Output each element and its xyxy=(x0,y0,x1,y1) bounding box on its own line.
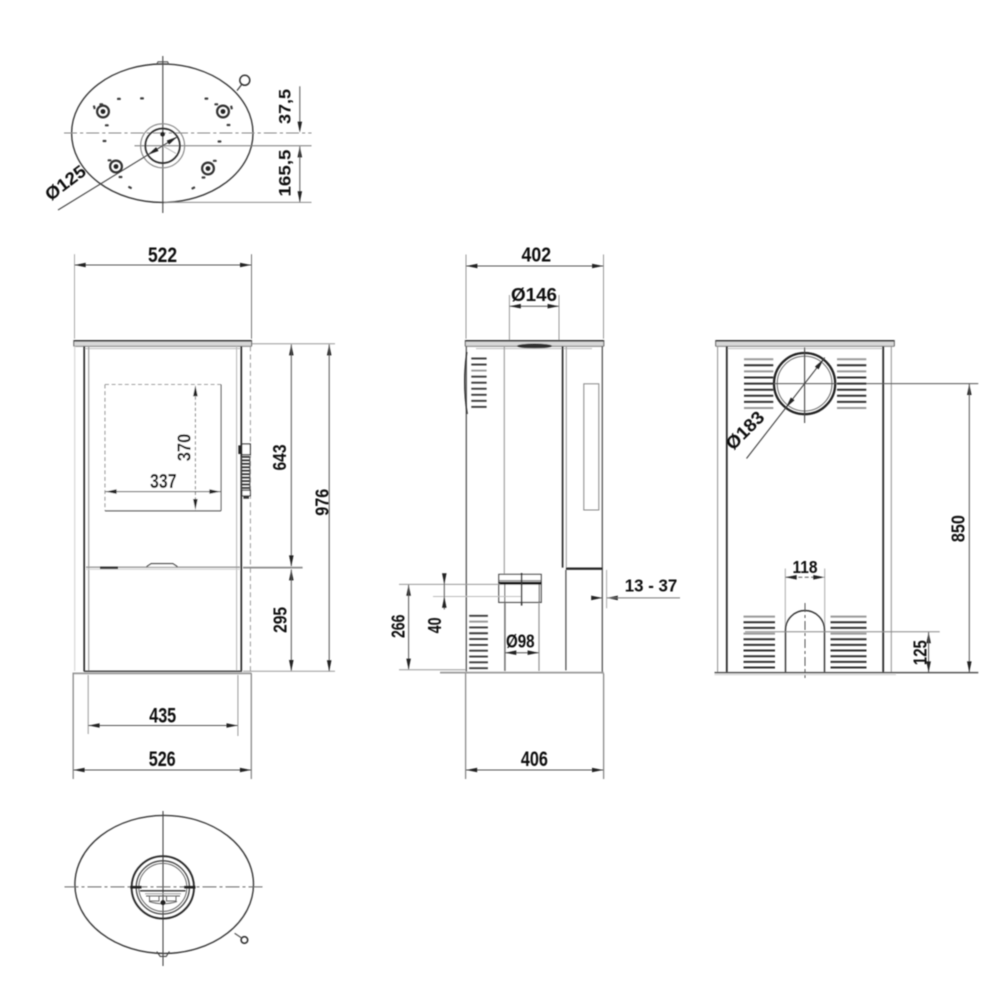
svg-text:850: 850 xyxy=(949,515,969,542)
svg-text:266: 266 xyxy=(388,615,408,639)
svg-text:976: 976 xyxy=(311,489,332,516)
svg-text:526: 526 xyxy=(149,748,176,771)
svg-text:Ø98: Ø98 xyxy=(506,632,535,652)
svg-text:165,5: 165,5 xyxy=(276,150,295,197)
svg-text:13 - 37: 13 - 37 xyxy=(625,576,678,596)
svg-text:40: 40 xyxy=(425,617,445,633)
svg-text:337: 337 xyxy=(150,471,177,493)
svg-text:435: 435 xyxy=(149,705,176,728)
svg-text:406: 406 xyxy=(521,748,548,771)
svg-text:125: 125 xyxy=(910,640,930,665)
svg-text:295: 295 xyxy=(270,607,290,633)
svg-text:Ø146: Ø146 xyxy=(511,284,557,305)
svg-text:370: 370 xyxy=(174,434,194,462)
svg-text:37,5: 37,5 xyxy=(276,89,295,124)
svg-text:643: 643 xyxy=(270,445,290,471)
svg-text:118: 118 xyxy=(793,557,818,577)
svg-text:402: 402 xyxy=(522,243,552,266)
svg-text:522: 522 xyxy=(148,244,177,267)
